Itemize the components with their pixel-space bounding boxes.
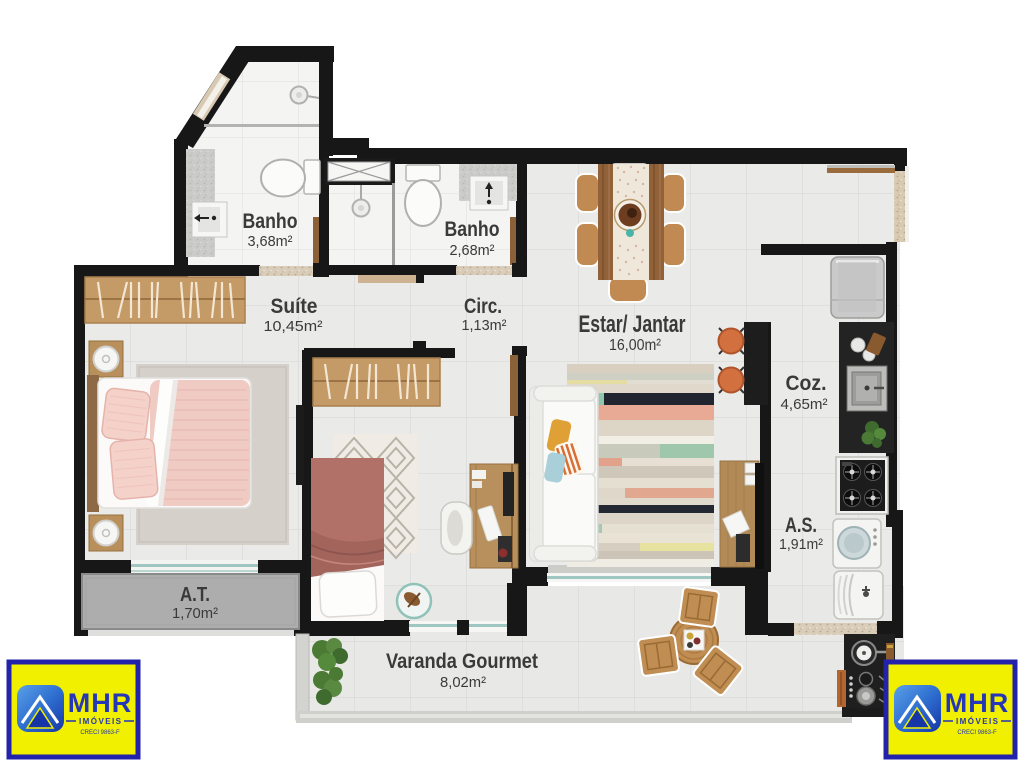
svg-text:4,65m²: 4,65m² [781,396,828,413]
svg-text:Varanda Gourmet: Varanda Gourmet [386,650,538,673]
svg-text:CRECI 9863-F: CRECI 9863-F [957,730,997,736]
svg-text:1,13m²: 1,13m² [462,317,507,334]
svg-text:A.T.: A.T. [180,584,210,606]
svg-text:Coz.: Coz. [786,372,827,395]
svg-text:1,70m²: 1,70m² [172,605,218,622]
svg-text:2,68m²: 2,68m² [450,242,495,259]
svg-text:Estar/ Jantar: Estar/ Jantar [579,311,686,338]
svg-text:Banho: Banho [243,210,298,233]
svg-text:16,00m²: 16,00m² [609,337,662,354]
svg-text:IMÓVEIS: IMÓVEIS [79,717,122,726]
svg-text:1,91m²: 1,91m² [779,536,823,553]
svg-text:10,45m²: 10,45m² [264,318,323,335]
svg-text:MHR: MHR [68,688,133,718]
svg-text:MHR: MHR [945,688,1010,718]
svg-text:Suíte: Suíte [271,295,318,318]
svg-text:IMÓVEIS: IMÓVEIS [956,717,999,726]
svg-text:Banho: Banho [445,218,500,241]
svg-text:A.S.: A.S. [785,514,817,537]
svg-text:Circ.: Circ. [464,295,502,318]
svg-text:CRECI 9863-F: CRECI 9863-F [80,730,120,736]
svg-text:3,68m²: 3,68m² [248,233,293,250]
svg-text:8,02m²: 8,02m² [440,674,486,691]
